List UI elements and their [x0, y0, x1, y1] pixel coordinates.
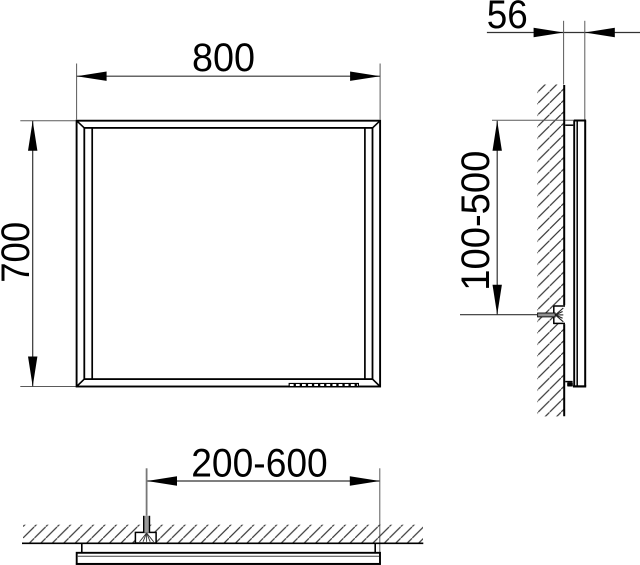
svg-text:100-500: 100-500	[454, 151, 498, 291]
svg-text:700: 700	[0, 222, 38, 283]
svg-text:56: 56	[487, 0, 528, 37]
svg-text:200-600: 200-600	[191, 442, 328, 486]
svg-text:800: 800	[192, 36, 255, 80]
